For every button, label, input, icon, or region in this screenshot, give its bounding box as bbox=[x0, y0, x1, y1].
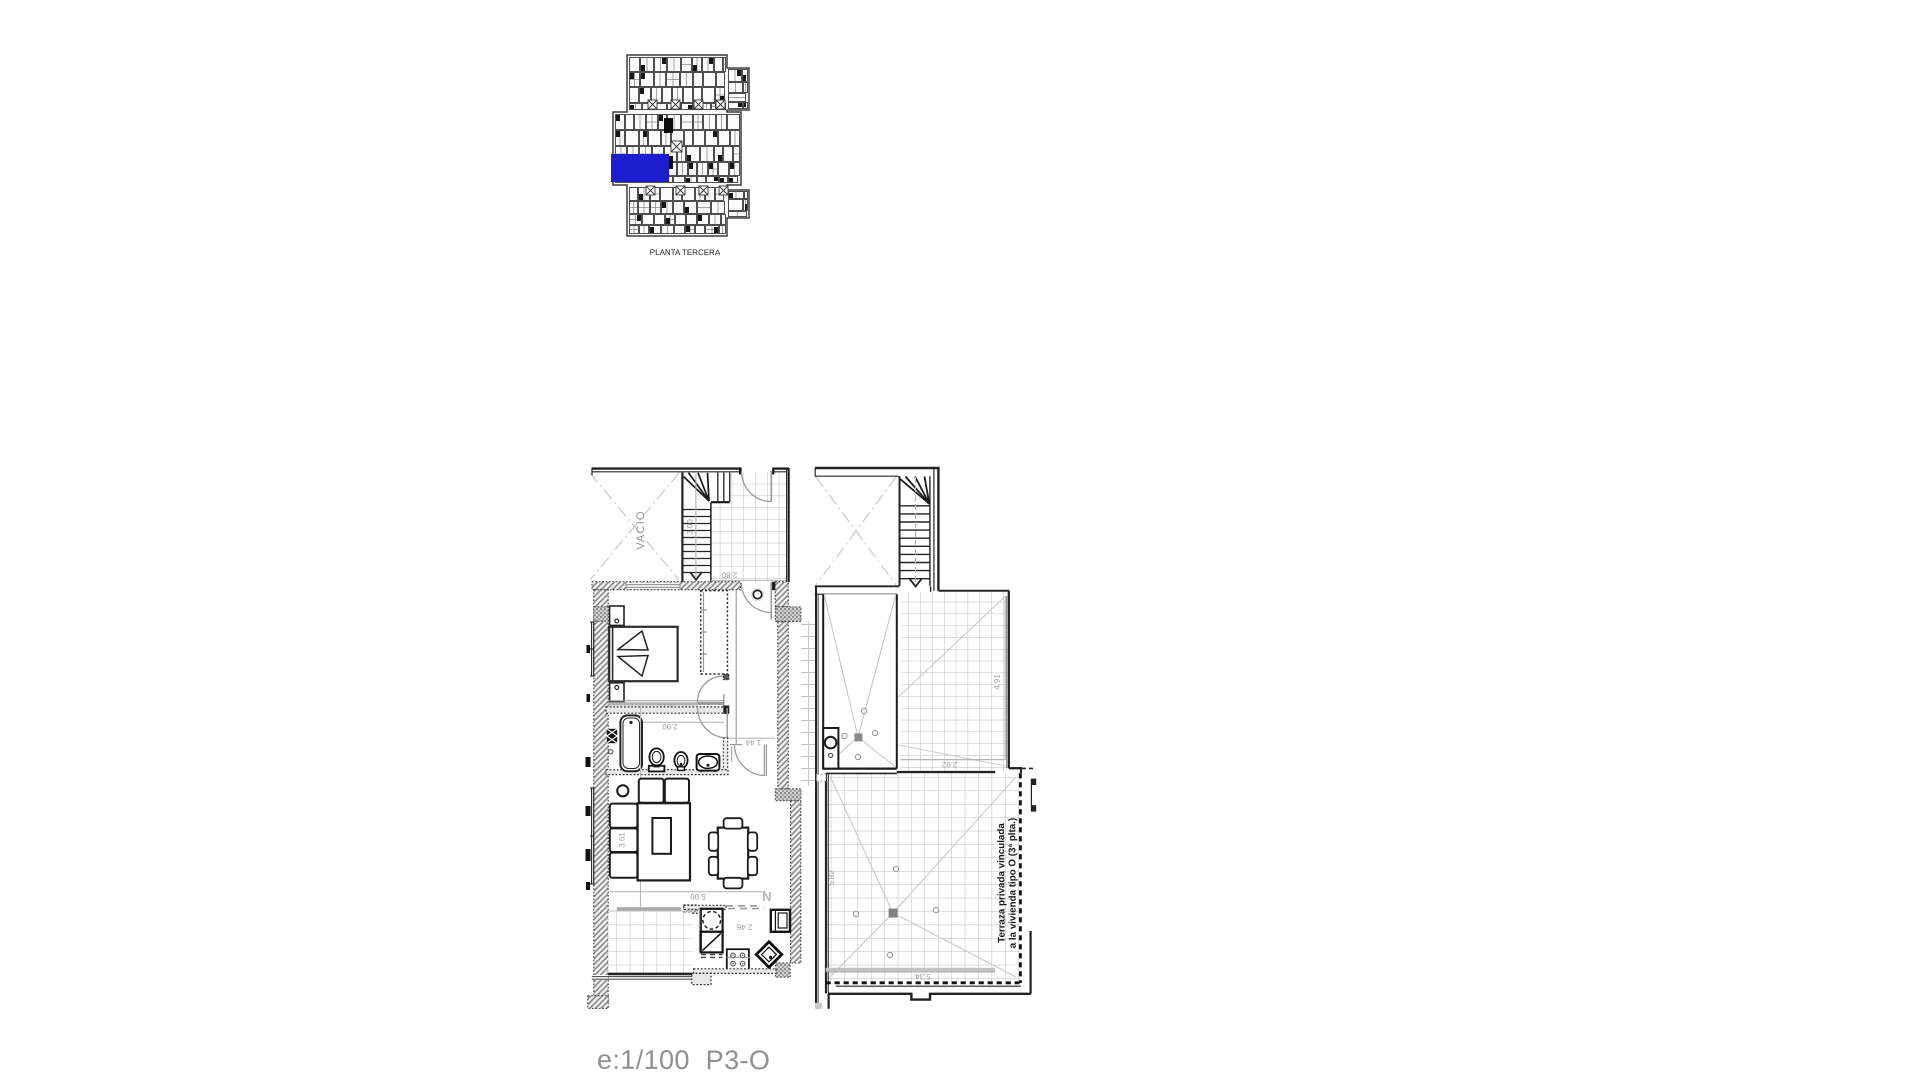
svg-text:e:1/100 P3-O: e:1/100 P3-O bbox=[597, 1045, 770, 1076]
svg-text:1.44: 1.44 bbox=[745, 738, 761, 747]
svg-text:4.91: 4.91 bbox=[993, 674, 1002, 690]
svg-text:3.61: 3.61 bbox=[617, 832, 626, 848]
svg-text:5.82: 5.82 bbox=[827, 870, 836, 886]
svg-text:PLANTA TERCERA: PLANTA TERCERA bbox=[650, 248, 721, 257]
svg-text:2.92: 2.92 bbox=[941, 760, 957, 769]
svg-text:N: N bbox=[762, 889, 771, 904]
svg-text:5.34: 5.34 bbox=[915, 972, 931, 981]
svg-text:2.46: 2.46 bbox=[736, 922, 752, 931]
svg-text:VACIO: VACIO bbox=[635, 510, 647, 549]
svg-text:5.00: 5.00 bbox=[690, 892, 706, 901]
svg-text:a la vivienda tipo O (3ª plta.: a la vivienda tipo O (3ª plta.) bbox=[1007, 818, 1019, 949]
svg-text:2.90: 2.90 bbox=[662, 722, 678, 731]
svg-text:Terraza privada vinculada: Terraza privada vinculada bbox=[996, 823, 1008, 943]
svg-text:3.00: 3.00 bbox=[685, 519, 694, 535]
svg-text:2.80: 2.80 bbox=[721, 570, 737, 579]
